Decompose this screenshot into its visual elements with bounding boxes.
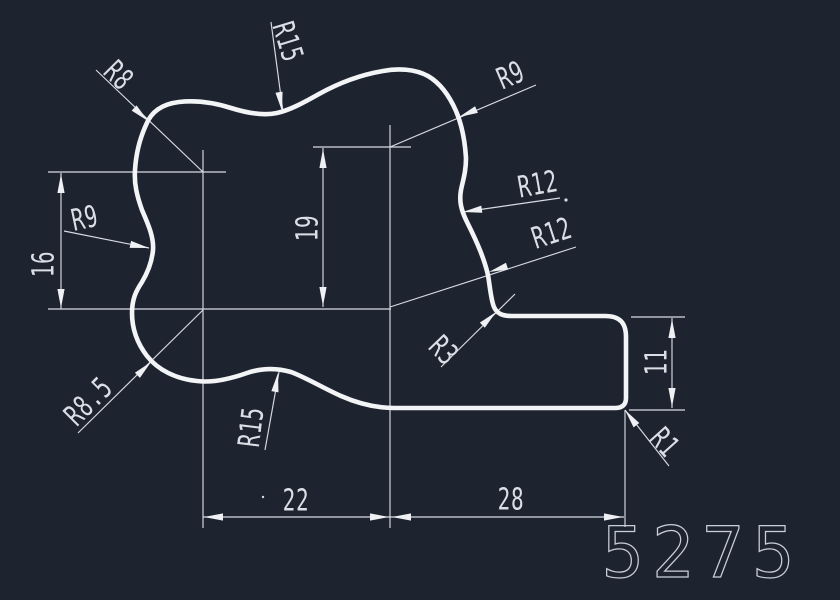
part-number: 5275 <box>602 512 803 594</box>
radius-label-r12-upper: R12 <box>515 164 560 205</box>
point-marker <box>564 198 567 201</box>
dimension-19-label: 19 <box>291 215 326 242</box>
center-and-extension-lines <box>48 125 685 528</box>
arrowhead <box>271 372 281 392</box>
arrowheads <box>57 92 675 521</box>
radius-label-r1: R1 <box>642 421 686 464</box>
radius-label-r15-bottom: R15 <box>232 405 271 449</box>
dimension-22-label: 22 <box>283 484 310 519</box>
cad-drawing: 16 19 22 28 11 R8 R15 R9 R9 R12 R12 R3 R… <box>0 0 840 600</box>
radius-label-r12-lower: R12 <box>528 211 577 256</box>
dimension-lines <box>61 148 672 517</box>
radius-label-r9-top-right: R9 <box>492 55 530 97</box>
arrowhead <box>370 513 389 520</box>
arrowhead <box>204 513 223 520</box>
arrowhead <box>668 319 675 338</box>
arrowhead <box>488 263 508 276</box>
radius-label-r8-5: R8.5 <box>58 371 120 433</box>
radius-label-r3: R3 <box>421 329 465 372</box>
dimension-28-label: 28 <box>498 483 525 518</box>
arrowhead <box>392 513 411 520</box>
radius-label-r8: R8 <box>96 54 139 97</box>
point-marker <box>262 496 264 498</box>
arrowhead <box>319 149 326 168</box>
arrowhead <box>135 359 154 377</box>
arrowhead <box>319 287 326 306</box>
arrowhead <box>668 388 675 407</box>
cad-canvas: 16 19 22 28 11 R8 R15 R9 R9 R12 R12 R3 R… <box>0 0 840 600</box>
arrowhead <box>130 241 150 252</box>
dimension-11-label: 11 <box>640 349 675 376</box>
dimension-16-label: 16 <box>27 251 62 278</box>
arrowhead <box>57 289 64 308</box>
arrowhead <box>57 174 64 193</box>
